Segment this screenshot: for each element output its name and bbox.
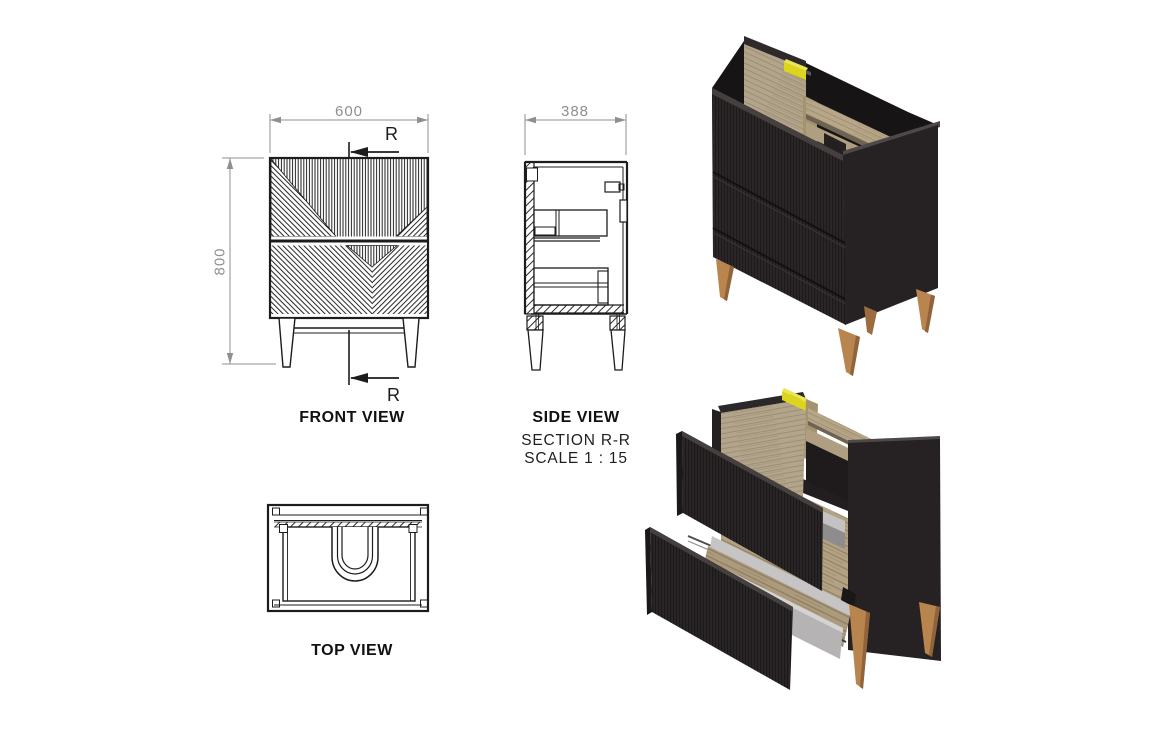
top-view-drawing <box>268 505 428 611</box>
scale-note: SCALE 1 : 15 <box>505 450 647 468</box>
section-title: SECTION R-R <box>505 432 647 450</box>
render-assembled-cabinet <box>712 36 940 376</box>
section-letter-top: R <box>385 124 398 145</box>
front-body <box>270 158 428 318</box>
front-view-title: FRONT VIEW <box>278 409 426 427</box>
side-view-title: SIDE VIEW <box>505 409 647 427</box>
top-view-title: TOP VIEW <box>278 642 426 660</box>
section-marker-bottom <box>349 330 399 385</box>
technical-drawing-sheet: 600 800 388 R R FRONT VIEW SIDE VIEW SEC… <box>0 0 1156 742</box>
plumbing-cutout <box>332 527 378 581</box>
side-width-dimension <box>525 114 626 155</box>
front-height-dim-label: 800 <box>212 240 229 284</box>
side-width-dim-label: 388 <box>553 103 597 120</box>
side-body <box>525 162 627 370</box>
front-view-drawing <box>222 114 428 385</box>
front-height-dimension <box>222 158 276 364</box>
render-open-cabinet <box>645 388 941 690</box>
side-view-drawing <box>525 114 627 370</box>
front-width-dim-label: 600 <box>327 103 371 120</box>
section-letter-bottom: R <box>387 385 400 406</box>
